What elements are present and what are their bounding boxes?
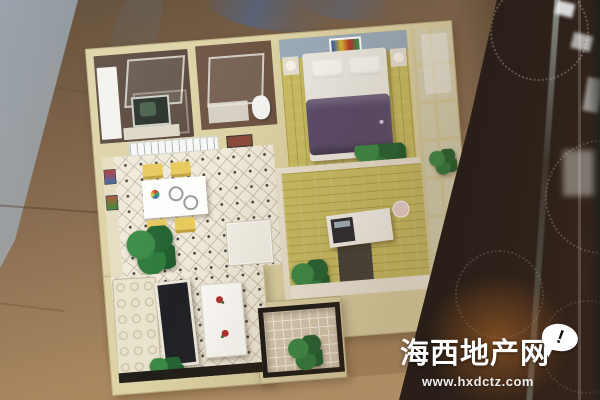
balcony-floor-highlight [421, 33, 452, 95]
plate [183, 195, 199, 211]
kitchen-island [326, 208, 394, 248]
sideboard-cabinet [225, 219, 274, 266]
pillow [311, 59, 344, 79]
dining-plant [125, 225, 177, 278]
master-bedroom [279, 30, 417, 168]
table-seam-line [0, 302, 65, 312]
table-decor [150, 190, 160, 200]
washer-door [139, 102, 156, 117]
plate [168, 186, 184, 202]
flower-vase [221, 330, 229, 338]
washing-machine [131, 95, 171, 128]
bottom-balcony [258, 302, 345, 378]
exclamation-glyph: ! [554, 327, 566, 347]
watermark-site-url: www.hxdctz.com [422, 374, 550, 389]
bathroom-cabinet [96, 67, 122, 140]
coffee-table [200, 281, 248, 358]
cooktop-appliance [330, 217, 355, 244]
balcony-plant [287, 334, 324, 373]
appliance-panel [334, 220, 351, 228]
dining-room [100, 131, 282, 278]
bathroom-2 [195, 40, 277, 130]
wall-picture [105, 195, 118, 211]
flower-vase [216, 296, 224, 304]
pendant-lamp [392, 200, 410, 218]
duvet-button [379, 120, 383, 124]
dining-table [141, 176, 208, 219]
balcony-ledge-plant [428, 148, 458, 176]
dining-chair [142, 163, 163, 180]
wall-picture [226, 134, 253, 148]
tv-panel [154, 279, 200, 369]
dining-chair [174, 217, 195, 234]
bathroom-1 [94, 49, 195, 144]
watermark: 海西地产网 www.hxdctz.com ! [400, 340, 550, 389]
watermark-site-name: 海西地产网 [400, 340, 550, 369]
toilet [251, 95, 271, 120]
photo-apartment-scale-model: 海西地产网 www.hxdctz.com ! [0, 0, 600, 400]
wall-picture [103, 169, 116, 185]
pillow [348, 56, 381, 76]
living-room [111, 266, 271, 384]
dining-chair [170, 161, 191, 178]
shower-tray [208, 100, 249, 123]
case-frame-right [588, 0, 600, 400]
